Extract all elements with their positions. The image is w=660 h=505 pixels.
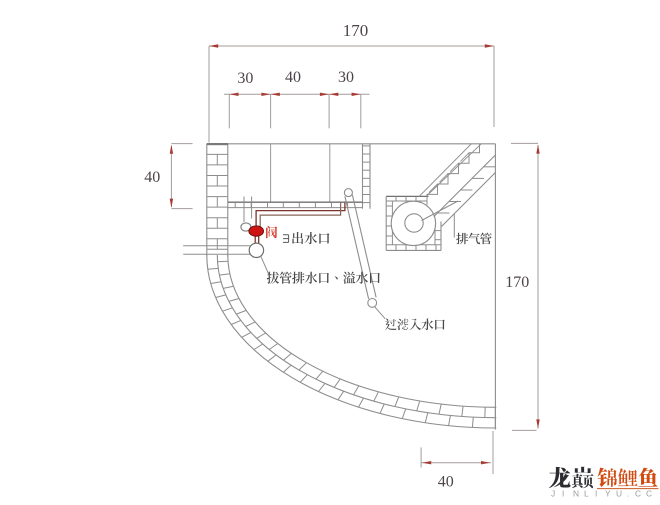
- svg-text:40: 40: [438, 474, 454, 491]
- svg-text:40: 40: [144, 169, 160, 186]
- svg-text:30: 30: [338, 69, 354, 86]
- svg-text:30: 30: [237, 70, 253, 87]
- svg-text:170: 170: [505, 274, 529, 291]
- svg-text:170: 170: [343, 21, 369, 40]
- svg-text:40: 40: [285, 69, 301, 86]
